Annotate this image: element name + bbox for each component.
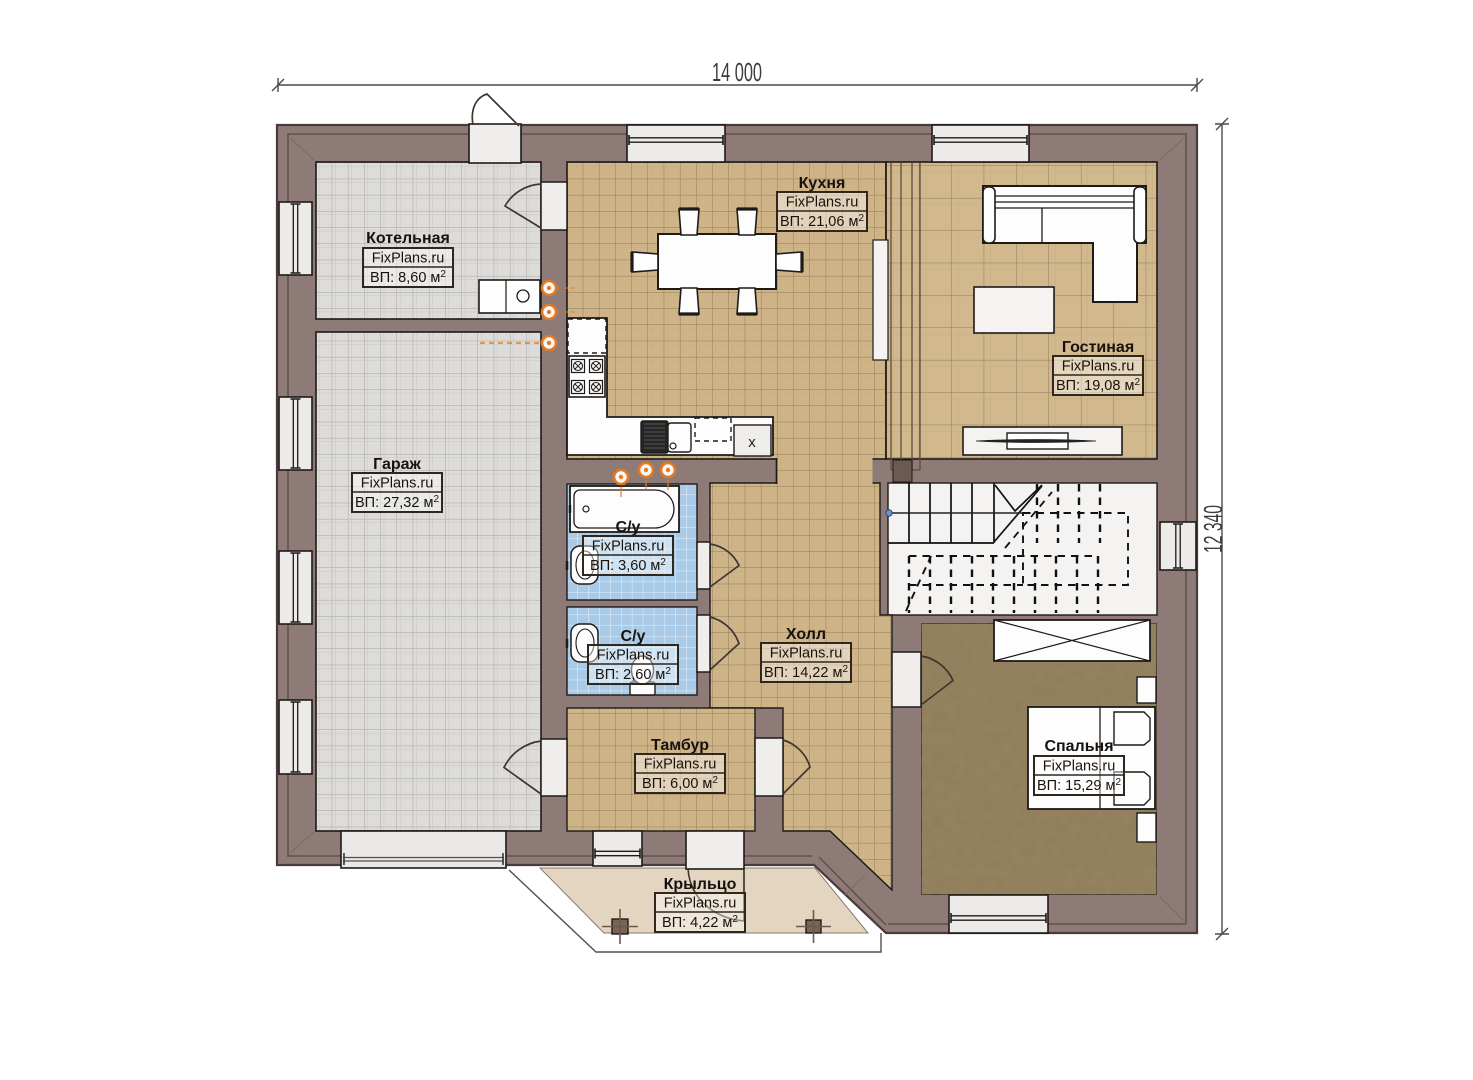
svg-text:x: x [748, 434, 756, 451]
svg-text:12 340: 12 340 [1198, 505, 1228, 553]
svg-text:ВП: 21,06 м2: ВП: 21,06 м2 [780, 213, 864, 230]
svg-text:FixPlans.ru: FixPlans.ru [664, 896, 737, 912]
svg-text:FixPlans.ru: FixPlans.ru [770, 646, 843, 662]
svg-text:FixPlans.ru: FixPlans.ru [361, 476, 434, 492]
svg-text:Крыльцо: Крыльцо [664, 876, 737, 893]
svg-text:FixPlans.ru: FixPlans.ru [597, 648, 670, 664]
svg-text:ВП: 14,22 м2: ВП: 14,22 м2 [764, 664, 848, 681]
svg-text:ВП: 8,60 м2: ВП: 8,60 м2 [370, 269, 446, 286]
svg-text:FixPlans.ru: FixPlans.ru [1043, 759, 1116, 775]
svg-text:ВП: 4,22 м2: ВП: 4,22 м2 [662, 914, 738, 931]
svg-text:ВП: 15,29 м2: ВП: 15,29 м2 [1037, 777, 1121, 794]
svg-text:FixPlans.ru: FixPlans.ru [644, 757, 717, 773]
svg-text:Холл: Холл [786, 626, 826, 643]
svg-text:С/у: С/у [616, 519, 641, 536]
svg-text:14 000: 14 000 [712, 57, 762, 87]
svg-text:Котельная: Котельная [366, 230, 450, 247]
svg-text:Гараж: Гараж [373, 456, 421, 473]
svg-text:ВП: 19,08 м2: ВП: 19,08 м2 [1056, 377, 1140, 394]
svg-text:Гостиная: Гостиная [1062, 339, 1134, 356]
svg-text:ВП: 6,00 м2: ВП: 6,00 м2 [642, 775, 718, 792]
svg-text:ВП: 27,32 м2: ВП: 27,32 м2 [355, 494, 439, 511]
svg-text:ВП: 2,60 м2: ВП: 2,60 м2 [595, 666, 671, 683]
svg-text:FixPlans.ru: FixPlans.ru [592, 539, 665, 555]
svg-text:FixPlans.ru: FixPlans.ru [786, 195, 859, 211]
svg-text:С/у: С/у [621, 628, 646, 645]
svg-text:FixPlans.ru: FixPlans.ru [1062, 359, 1135, 375]
svg-text:Кухня: Кухня [799, 175, 846, 192]
svg-text:Спальня: Спальня [1044, 738, 1113, 755]
svg-text:Тамбур: Тамбур [651, 737, 709, 754]
svg-text:ВП: 3,60 м2: ВП: 3,60 м2 [590, 557, 666, 574]
svg-text:FixPlans.ru: FixPlans.ru [372, 251, 445, 267]
